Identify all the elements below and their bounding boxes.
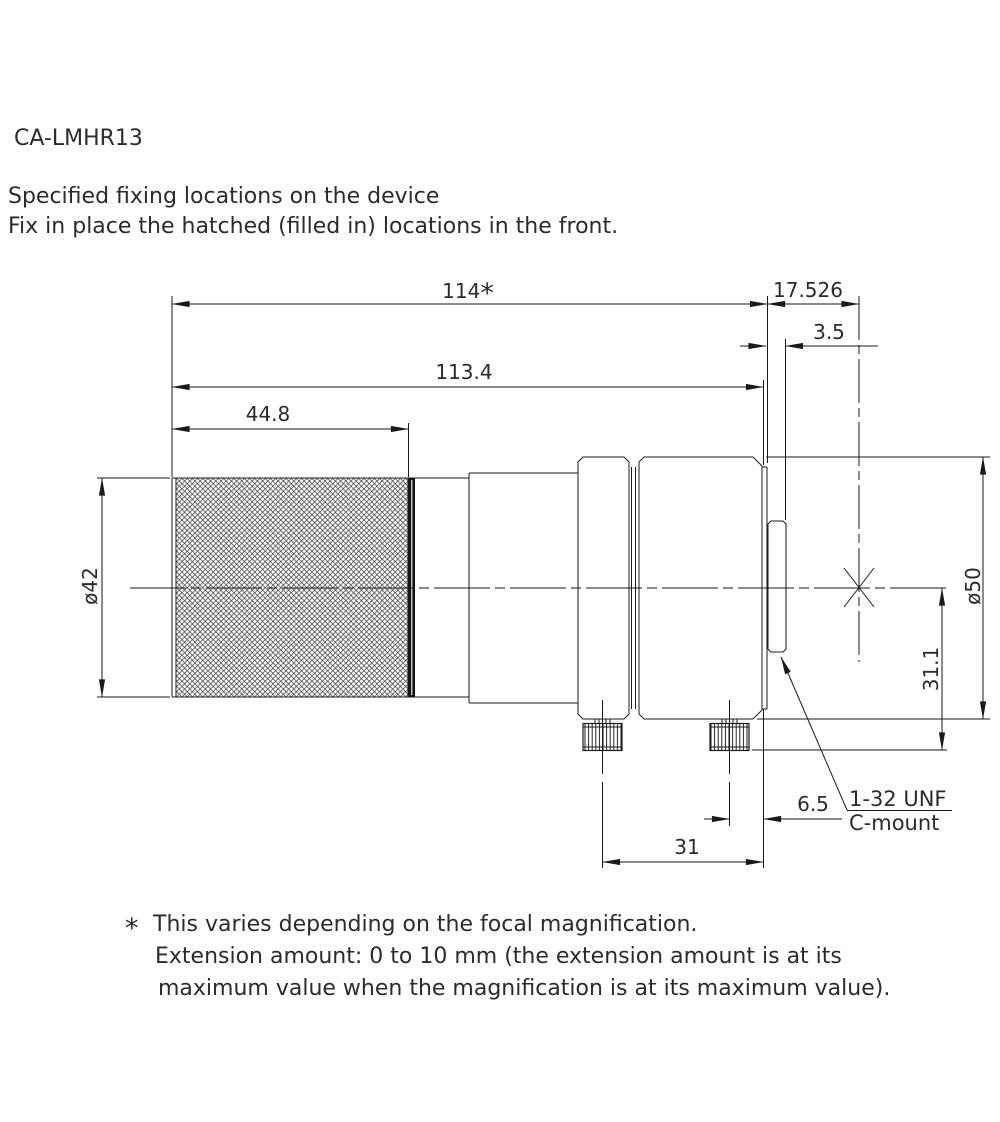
- dim-front-diameter-label: ø42: [78, 567, 102, 605]
- dim-axis-to-screw-bottom-label: 31.1: [919, 647, 943, 692]
- lens-body: [172, 457, 786, 751]
- dim-front-section-label: 44.8: [246, 402, 291, 426]
- dim-axis-to-screw-bottom: 31.1: [919, 588, 943, 750]
- dim-screw1-to-flange: 31: [603, 835, 764, 862]
- footnote-line-1: This varies depending on the focal magni…: [152, 912, 697, 937]
- thread-spec-label: 1-32 UNF: [849, 787, 947, 811]
- dim-thread-protrusion-label: 3.5: [813, 320, 845, 344]
- mount-type-label: C-mount: [849, 811, 939, 835]
- dim-body-length-label: 113.4: [435, 360, 492, 384]
- model-number: CA-LMHR13: [14, 126, 143, 151]
- dim-flange-focal-label: 17.526: [773, 278, 843, 302]
- footnote: * This varies depending on the focal mag…: [125, 912, 890, 1001]
- footnote-line-3: maximum value when the magnification is …: [158, 976, 890, 1001]
- dim-rear-diameter: ø50: [961, 457, 985, 719]
- dim-thread-protrusion: 3.5: [740, 320, 878, 346]
- dim-screw1-to-flange-label: 31: [674, 835, 699, 859]
- note-line-1: Specified fixing locations on the device: [8, 184, 439, 209]
- dim-rear-diameter-label: ø50: [961, 567, 985, 605]
- note-line-2: Fix in place the hatched (filled in) loc…: [8, 214, 618, 239]
- footnote-marker: *: [125, 913, 139, 944]
- dim-total-length: 114*: [172, 278, 768, 309]
- dim-screw2-to-flange: 6.5: [704, 792, 842, 819]
- dim-flange-focal-distance: 17.526: [768, 278, 860, 304]
- callout-leader-line: [781, 657, 847, 810]
- dim-front-section-length: 44.8: [172, 402, 409, 429]
- dim-screw2-to-flange-label: 6.5: [797, 792, 829, 816]
- footnote-line-2: Extension amount: 0 to 10 mm (the extens…: [155, 944, 842, 969]
- c-mount-thread: [768, 521, 786, 652]
- dim-front-diameter: ø42: [78, 478, 102, 697]
- dim-body-length: 113.4: [172, 360, 764, 387]
- lens-dimension-drawing: CA-LMHR13 Specified fixing locations on …: [0, 0, 1000, 1122]
- technical-drawing-page: CA-LMHR13 Specified fixing locations on …: [0, 0, 1000, 1122]
